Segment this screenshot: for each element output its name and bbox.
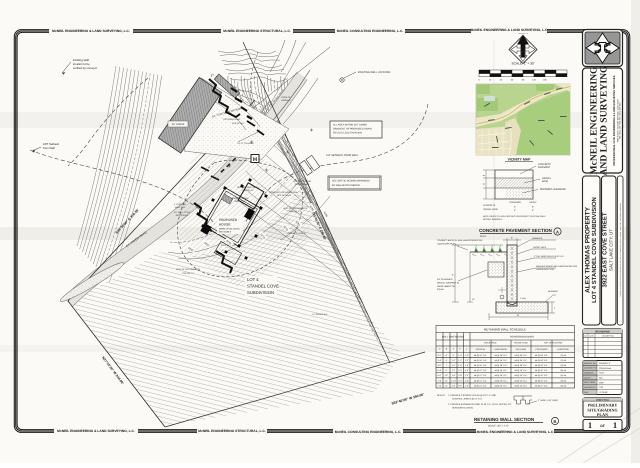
svg-text:REPLACEMENT AREA: REPLACEMENT AREA [237, 186, 259, 189]
svg-text:7": 7" [446, 364, 448, 367]
svg-text:HORIZONTAL STEEL: HORIZONTAL STEEL [452, 406, 474, 409]
svg-text:12": 12" [445, 384, 448, 387]
svg-text:CONCRETE RETAINING WALL: CONCRETE RETAINING WALL [269, 191, 299, 194]
svg-text:STANDEL COVE: STANDEL COVE [247, 284, 279, 289]
svg-text:2'-0": 2'-0" [458, 369, 462, 372]
svg-text:GRAVEL: GRAVEL [542, 177, 552, 180]
svg-text:B: B [554, 419, 557, 424]
svg-text:OF: OF [600, 424, 605, 428]
svg-text:#4 @ 16" O.C.: #4 @ 16" O.C. [495, 384, 508, 387]
svg-text:1" MIN: 1" MIN [520, 297, 526, 300]
svg-text:RETAINING WALL: RETAINING WALL [223, 118, 241, 121]
svg-text:WALL TYP.: WALL TYP. [175, 206, 186, 209]
svg-text:EACH WAY: EACH WAY [516, 348, 527, 351]
svg-text:SEE DETAIL: SEE DETAIL [232, 122, 245, 125]
svg-text:McNEIL ENGINEERING & LAND SURV: McNEIL ENGINEERING & LAND SURVEYING, L.C [471, 28, 548, 32]
svg-text:TOP OF FOOTING: TOP OF FOOTING [544, 342, 563, 345]
svg-text:2. PROVIDE EXPANSION JOINT W 4: 2. PROVIDE EXPANSION JOINT W 40' O.C. (F… [448, 403, 512, 406]
svg-text:from Wall: from Wall [43, 146, 55, 150]
svg-text:(3) #4: (3) #4 [561, 364, 567, 367]
svg-text:3/4" Ø WASHED: 3/4" Ø WASHED [437, 278, 453, 281]
svg-text:#4 @ 24" O.C.: #4 @ 24" O.C. [495, 364, 508, 367]
svg-text:#4 @ 16" O.C.: #4 @ 16" O.C. [535, 374, 548, 377]
svg-text:#4 @ 16" O.C.: #4 @ 16" O.C. [474, 364, 487, 367]
svg-text:FRONT FACE: FRONT FACE [514, 342, 528, 345]
svg-text:1" WIDE x 3/4" DEEP: 1" WIDE x 3/4" DEEP [538, 399, 559, 402]
svg-text:SCALE: 1" = 30': SCALE: 1" = 30' [512, 62, 535, 66]
svg-text:7700 SQ. FT.: 7700 SQ. FT. [182, 272, 195, 275]
svg-text:McNEIL ENGINEERING STRUCTURAL,: McNEIL ENGINEERING STRUCTURAL, L.C. [223, 29, 291, 33]
svg-text:3922 EAST COVE STREET: 3922 EAST COVE STREET [602, 212, 609, 287]
svg-text:BY GSH GEOTECHNICAL: BY GSH GEOTECHNICAL [332, 184, 361, 187]
svg-text:2'-0": 2'-0" [438, 354, 442, 357]
svg-text:PLAN: PLAN [597, 412, 608, 417]
svg-text:#4 @ 24" O.C.: #4 @ 24" O.C. [535, 359, 548, 362]
svg-text:CONCRETE: CONCRETE [538, 163, 551, 166]
svg-text:WARP FABRIC OR: WARP FABRIC OR [437, 285, 455, 288]
svg-text:3'-0": 3'-0" [458, 384, 462, 387]
svg-text:HORIZONTAL: HORIZONTAL [495, 348, 509, 351]
svg-text:EXISTING WELL LOCATION: EXISTING WELL LOCATION [358, 71, 391, 74]
svg-text:E-MAIL: info@mcneileng.com WE: E-MAIL: info@mcneileng.com WEB SITE AT w… [621, 95, 624, 145]
svg-text:#4 @ 16" O.C.: #4 @ 16" O.C. [495, 369, 508, 372]
svg-text:#4 @ 12" O.C.: #4 @ 12" O.C. [474, 369, 487, 372]
svg-text:7'-4": 7'-4" [438, 384, 442, 387]
svg-text:NOTE: REFER TO SOILS REPORT FO: NOTE: REFER TO SOILS REPORT FOR PROJECT … [483, 215, 546, 218]
svg-text:MSP: MSP [599, 381, 604, 384]
svg-text:SEPTIC TANKS: SEPTIC TANKS [295, 183, 310, 186]
svg-text:1'-0": 1'-0" [452, 359, 456, 362]
svg-text:(2) #4: (2) #4 [561, 354, 567, 357]
svg-text:CAD/DWG FILE: CAD/DWG FILE [584, 367, 598, 370]
svg-text:#4 @ 16" O.C.: #4 @ 16" O.C. [535, 379, 548, 382]
svg-text:100' SETBACK FROM WELL: 100' SETBACK FROM WELL [326, 154, 359, 157]
svg-text:5": 5" [532, 206, 534, 209]
svg-text:TDM: TDM [599, 372, 604, 375]
svg-text:(5) #4: (5) #4 [561, 374, 567, 377]
svg-text:EDGE AT 6' FENCE: EDGE AT 6' FENCE [287, 232, 306, 235]
svg-text:NOTE:: NOTE: [480, 235, 487, 238]
svg-text:RETAINING WALL SCHEDULE: RETAINING WALL SCHEDULE [484, 328, 526, 332]
svg-text:4": 4" [514, 206, 516, 209]
svg-text:2'-4": 2'-4" [452, 384, 456, 387]
svg-text:AND LAND SURVEYING: AND LAND SURVEYING [599, 65, 610, 176]
svg-text:4'-0": 4'-0" [438, 364, 442, 367]
svg-text:FFE=6288.5: FFE=6288.5 [219, 231, 232, 234]
svg-text:McNEIL ENGINEERING & LAND SURV: McNEIL ENGINEERING & LAND SURVEYING, L.C… [57, 429, 135, 433]
svg-text:(5) #4: (5) #4 [561, 379, 567, 382]
svg-text:McNEIL CONSULTING ENGINEERING,: McNEIL CONSULTING ENGINEERING, L.C. [335, 430, 402, 434]
svg-text:2" DIA. WEEP HOLES @ 10' O.C.: 2" DIA. WEEP HOLES @ 10' O.C. [534, 255, 565, 258]
svg-text:(2) #4: (2) #4 [561, 359, 567, 362]
svg-text:#4 @ 12" O.C.: #4 @ 12" O.C. [535, 384, 548, 387]
svg-text:EDGE OF: EDGE OF [281, 96, 291, 99]
svg-text:#4 @ 16" O.C.: #4 @ 16" O.C. [495, 374, 508, 377]
svg-text:RETAINING WALL SECTION: RETAINING WALL SECTION [474, 417, 534, 422]
svg-text:HOUSE: HOUSE [219, 223, 230, 227]
svg-text:COMPACT BACKFILL AND LANDSCAPI: COMPACT BACKFILL AND LANDSCAPING SEE [437, 239, 483, 242]
svg-text:7'-4": 7'-4" [438, 379, 442, 382]
svg-text:#4 @ 24" O.C.: #4 @ 24" O.C. [515, 354, 528, 357]
svg-text:FRONT FACE: FRONT FACE [533, 246, 547, 249]
svg-text:McNEIL CONSULTING ENGINEERING,: McNEIL CONSULTING ENGINEERING, L.C. [337, 29, 404, 33]
svg-text:8": 8" [446, 369, 448, 372]
svg-text:McNEIL ENGINEERING & LAND SURV: McNEIL ENGINEERING & LAND SURVEYING, L.C [477, 430, 554, 434]
svg-text:#4 @ 16" O.C.: #4 @ 16" O.C. [495, 379, 508, 382]
svg-text:#4 @ 24" O.C.: #4 @ 24" O.C. [535, 364, 548, 367]
svg-text:ALEX THOMAS PROPERTY: ALEX THOMAS PROPERTY [585, 206, 592, 293]
svg-text:1: 1 [588, 420, 592, 430]
svg-text:2'-4": 2'-4" [465, 379, 469, 382]
svg-text:PAVEMENT: PAVEMENT [538, 166, 551, 169]
svg-text:VICINITY MAP: VICINITY MAP [508, 158, 531, 162]
svg-text:1: 1 [613, 420, 617, 430]
svg-text:2'-4": 2'-4" [458, 374, 462, 377]
svg-text:#4 @ 16" O.C.: #4 @ 16" O.C. [515, 374, 528, 377]
svg-text:REPORT EMERGES.: REPORT EMERGES. [483, 218, 503, 221]
svg-text:12": 12" [472, 298, 475, 301]
svg-text:FINISHED GRADE AND LANDSCAPING: FINISHED GRADE AND LANDSCAPING SEE [536, 265, 578, 268]
svg-text:H: H [253, 157, 257, 163]
svg-text:5'-4": 5'-4" [438, 369, 442, 372]
svg-text:H: H [452, 274, 455, 276]
svg-text:2'-8": 2'-8" [465, 384, 469, 387]
svg-text:CAD BY: CAD BY [584, 376, 591, 379]
svg-text:4' VERTICAL: 4' VERTICAL [174, 203, 187, 206]
svg-text:GRADIENT OF PROPOSED DRAIN: GRADIENT OF PROPOSED DRAIN [333, 128, 372, 131]
svg-text:EX. WALL TO BE: EX. WALL TO BE [174, 211, 191, 214]
svg-text:REVISIONS: REVISIONS [595, 331, 609, 334]
svg-text:(5) #4: (5) #4 [561, 384, 567, 387]
svg-text:8": 8" [453, 354, 455, 357]
svg-text:12": 12" [445, 379, 448, 382]
svg-text:verified by surveyor: verified by surveyor [73, 66, 97, 70]
svg-text:1. PROVIDE 2"Ø WEEP HOLES @ 10: 1. PROVIDE 2"Ø WEEP HOLES @ 10' O.C. AND [448, 394, 497, 397]
svg-text:N/A: N/A [599, 376, 603, 379]
svg-text:1'-2": 1'-2" [458, 359, 462, 362]
svg-text:#4 @ 12" O.C.: #4 @ 12" O.C. [474, 374, 487, 377]
svg-text:STANDARD: STANDARD [509, 201, 521, 204]
svg-text:4": 4" [446, 354, 448, 357]
svg-text:1'-0": 1'-0" [458, 354, 462, 357]
svg-text:#4 @ 12" O.C.: #4 @ 12" O.C. [474, 384, 487, 387]
svg-text:6": 6" [446, 359, 448, 362]
svg-text:#4 @ 24" O.C.: #4 @ 24" O.C. [495, 359, 508, 362]
svg-text:1'-0": 1'-0" [452, 364, 456, 367]
svg-text:#4 @ 16" O.C.: #4 @ 16" O.C. [474, 354, 487, 357]
svg-text:12-28-08: 12-28-08 [599, 391, 608, 394]
svg-text:LOT 4 STANDEL COVE SUBDIVISION: LOT 4 STANDEL COVE SUBDIVISION [591, 197, 598, 303]
svg-text:CHAMFER: CHAMFER [532, 237, 543, 240]
svg-text:NOTES:: NOTES: [437, 394, 446, 397]
svg-text:LIMIT OF DISTURBANCE: LIMIT OF DISTURBANCE [283, 207, 308, 210]
svg-text:2004XXXbsd: 2004XXXbsd [599, 367, 612, 370]
svg-text:#4 @ 24" O.C.: #4 @ 24" O.C. [515, 364, 528, 367]
svg-text:#4 @ 16" O.C.: #4 @ 16" O.C. [535, 369, 548, 372]
svg-text:3000 SQ FT: 3000 SQ FT [234, 200, 246, 203]
svg-text:LANDSCAPE PLAN: LANDSCAPE PLAN [536, 268, 554, 271]
svg-text:3000 SQ FT: 3000 SQ FT [242, 189, 254, 192]
svg-text:BASE: BASE [542, 180, 549, 183]
svg-text:LONGITUDE: LONGITUDE [557, 348, 569, 351]
svg-text:(MAIN LEVEL=6287): (MAIN LEVEL=6287) [219, 228, 240, 231]
svg-text:#4 @ 24" O.C.: #4 @ 24" O.C. [515, 359, 528, 362]
svg-text:DRAWN BY: DRAWN BY [584, 372, 594, 375]
svg-text:SCALE: 3/4" = 1'-0": SCALE: 3/4" = 1'-0" [488, 425, 509, 428]
svg-text:LOT 4: LOT 4 [247, 277, 259, 282]
svg-text:RELOCATED: RELOCATED [176, 214, 189, 217]
svg-text:FIELD CREW: FIELD CREW [584, 381, 595, 384]
svg-text:#4 @ 16" O.C.: #4 @ 16" O.C. [474, 359, 487, 362]
svg-text:WALL DIMENSIONS: WALL DIMENSIONS [442, 336, 465, 339]
svg-text:PREPARED SUBGRADE: PREPARED SUBGRADE [540, 188, 566, 191]
svg-text:EX. HOUSE: EX. HOUSE [172, 123, 185, 126]
svg-text:CONCRETE: CONCRETE [483, 204, 496, 207]
svg-text:#4 @ 16" O.C.: #4 @ 16" O.C. [515, 369, 528, 372]
svg-text:ALL AREA WITHIN SET DOWN: ALL AREA WITHIN SET DOWN [333, 124, 367, 127]
svg-text:6'-0": 6'-0" [438, 374, 442, 377]
svg-text:1'-4": 1'-4" [465, 364, 469, 367]
svg-text:4": 4" [514, 209, 516, 212]
svg-text:REINFORCING BARS: REINFORCING BARS [510, 336, 534, 339]
svg-text:VERTICAL: VERTICAL [476, 348, 487, 351]
svg-text:#4 @ 16" O.C.: #4 @ 16" O.C. [515, 384, 528, 387]
svg-text:PROJECT NO: PROJECT NO [584, 362, 596, 365]
svg-text:#4 REBAR: #4 REBAR [548, 290, 558, 293]
svg-text:(4) #4: (4) #4 [561, 369, 567, 372]
svg-text:2'-8": 2'-8" [458, 379, 462, 382]
svg-text:McNEIL ENGINEERING & LAND SURV: McNEIL ENGINEERING & LAND SURVEYING, L.C… [52, 29, 130, 33]
svg-text:SALT LAKE CITY, UT: SALT LAKE CITY, UT [609, 229, 614, 271]
svg-text:EX. 8" CULINARY: EX. 8" CULINARY [238, 142, 255, 145]
svg-text:LIMIT OF DISTURBANCE: LIMIT OF DISTURBANCE [176, 268, 201, 271]
svg-text:GRAVEL BASE: GRAVEL BASE [483, 208, 499, 211]
svg-text:CONCRETE PAVEMENT SECTION: CONCRETE PAVEMENT SECTION [479, 228, 552, 233]
svg-text:1'-8": 1'-8" [465, 369, 469, 372]
svg-text:GRAVEL WRAPPED IN: GRAVEL WRAPPED IN [437, 281, 459, 284]
svg-text:ASPHALT: ASPHALT [281, 99, 291, 102]
svg-text:DESCRIPTION: DESCRIPTION [602, 335, 614, 338]
svg-text:8": 8" [511, 237, 513, 240]
svg-text:20040812-2: 20040812-2 [599, 362, 611, 365]
svg-text:SEE DETAIL B: SEE DETAIL B [277, 194, 291, 197]
svg-text:SEE SEPTIC DESIGN DRAWINGS: SEE SEPTIC DESIGN DRAWINGS [332, 180, 370, 183]
svg-text:14" SEWER INV.: 14" SEWER INV. [312, 313, 328, 316]
svg-text:FIELD IS LESS THAN 30%: FIELD IS LESS THAN 30% [333, 132, 363, 135]
svg-text:HEAVY: HEAVY [529, 201, 537, 204]
svg-text:CONTROL JOINTS @ 12' O.C.: CONTROL JOINTS @ 12' O.C. [452, 397, 483, 400]
svg-text:PROFESSIONAL CIVIL ENGINEERING: PROFESSIONAL CIVIL ENGINEERING & LAND SU… [613, 75, 616, 165]
svg-text:PROPOSED: PROPOSED [219, 218, 238, 222]
svg-text:#4 @ 24" O.C.: #4 @ 24" O.C. [495, 354, 508, 357]
svg-text:10": 10" [445, 374, 448, 377]
svg-text:1'-0": 1'-0" [465, 354, 469, 357]
svg-text:CHECKED BY: CHECKED BY [584, 386, 596, 389]
svg-text:BACK FACE: BACK FACE [484, 342, 497, 345]
svg-text:4": 4" [532, 209, 534, 212]
svg-text:2'-0": 2'-0" [465, 374, 469, 377]
svg-text:10' STEALTH TRIM: 10' STEALTH TRIM [293, 180, 311, 183]
svg-text:DATE: DATE [584, 391, 589, 394]
svg-text:1'-10": 1'-10" [451, 379, 456, 382]
svg-text:1'-8": 1'-8" [458, 364, 462, 367]
svg-text:3'-4": 3'-4" [438, 359, 442, 362]
svg-text:EQUAL: EQUAL [437, 288, 445, 291]
svg-text:1'-4": 1'-4" [452, 374, 456, 377]
svg-text:1'-2": 1'-2" [465, 359, 469, 362]
svg-text:1'-2": 1'-2" [452, 369, 456, 372]
svg-text:STEP IN WALL: STEP IN WALL [221, 244, 236, 247]
svg-text:SUBDIVISION: SUBDIVISION [247, 290, 274, 295]
svg-text:#4 @ 12" O.C.: #4 @ 12" O.C. [474, 379, 487, 382]
svg-text:A: A [556, 230, 559, 235]
svg-text:PRIMARY DRAIN: PRIMARY DRAIN [232, 197, 249, 200]
svg-text:TGZ: TGZ [599, 386, 604, 389]
svg-text:CROSSWISE: CROSSWISE [535, 348, 548, 351]
svg-text:#4 @ 16" O.C.: #4 @ 16" O.C. [515, 379, 528, 382]
svg-text:McNEIL ENGINEERING STRUCTURAL,: McNEIL ENGINEERING STRUCTURAL, L.C. [198, 429, 266, 433]
svg-text:7700 SQ. FT.: 7700 SQ. FT. [289, 210, 302, 213]
svg-text:#4 @ 24" O.C.: #4 @ 24" O.C. [535, 354, 548, 357]
